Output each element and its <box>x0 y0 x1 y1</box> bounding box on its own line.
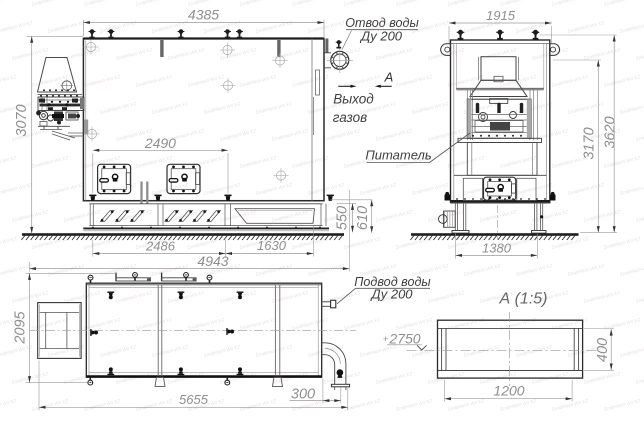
svg-text:3620: 3620 <box>603 116 619 148</box>
svg-text:1915: 1915 <box>486 8 516 23</box>
svg-text:2095: 2095 <box>13 310 29 344</box>
svg-text:+: + <box>383 334 388 344</box>
svg-text:610: 610 <box>355 206 371 230</box>
svg-text:А (1:5): А (1:5) <box>498 291 547 308</box>
svg-text:Питатель: Питатель <box>365 148 432 163</box>
svg-text:2750: 2750 <box>388 331 420 347</box>
svg-text:2490: 2490 <box>144 135 176 151</box>
svg-text:300: 300 <box>291 387 315 403</box>
svg-text:Ду 200: Ду 200 <box>359 29 403 44</box>
svg-text:1200: 1200 <box>493 383 524 399</box>
svg-text:А: А <box>384 70 394 85</box>
svg-text:1630: 1630 <box>257 238 287 253</box>
svg-text:1380: 1380 <box>482 241 512 256</box>
svg-text:3070: 3070 <box>14 104 30 136</box>
svg-text:550: 550 <box>334 206 350 230</box>
svg-text:4385: 4385 <box>188 7 219 23</box>
svg-text:3170: 3170 <box>581 127 597 159</box>
svg-text:Ду 200: Ду 200 <box>369 287 413 302</box>
svg-text:400: 400 <box>595 338 611 362</box>
svg-text:газов: газов <box>333 110 367 125</box>
svg-text:4943: 4943 <box>197 253 228 269</box>
svg-text:2486: 2486 <box>145 239 176 254</box>
svg-text:5655: 5655 <box>179 392 209 407</box>
svg-text:Выход: Выход <box>333 92 374 107</box>
